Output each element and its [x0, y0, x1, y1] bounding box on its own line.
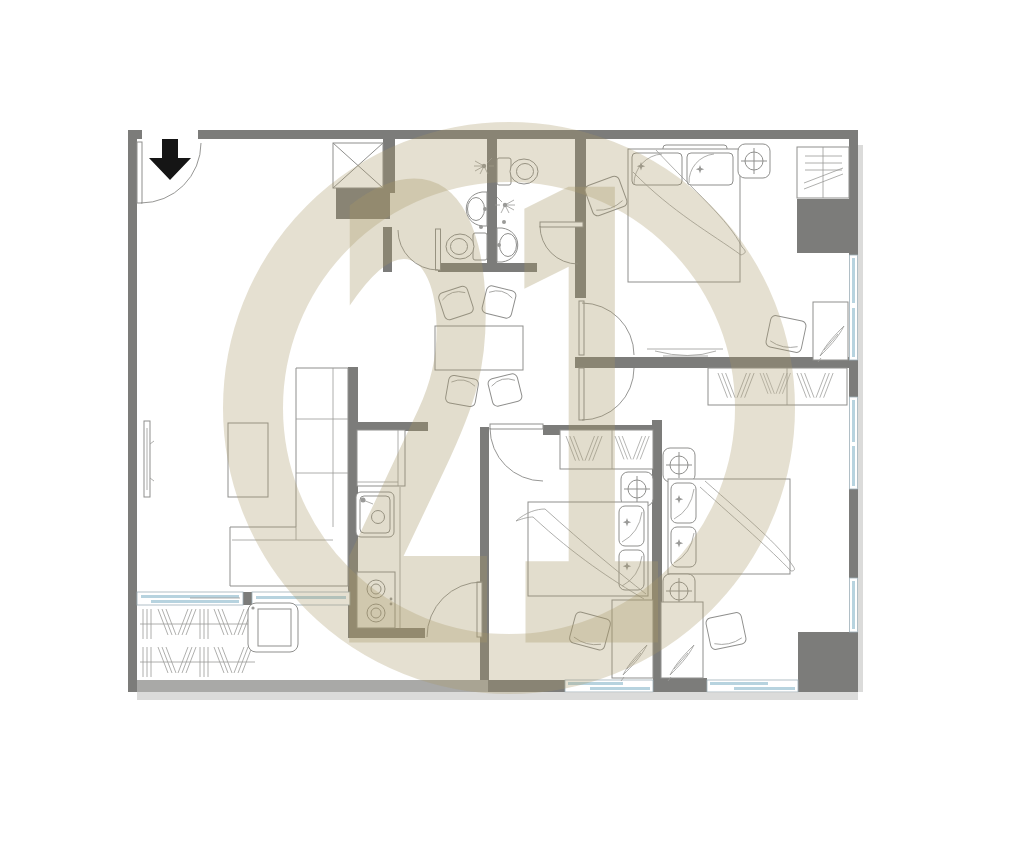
- air-conditioner: [663, 448, 695, 482]
- balcony-door-mullion: [243, 592, 252, 605]
- chair: [705, 612, 747, 651]
- bedroom1-column: [797, 199, 850, 253]
- wall-right-upper: [849, 130, 858, 255]
- wall-right-mid2: [849, 489, 858, 578]
- watermark-digits: 21: [329, 63, 662, 790]
- floor-plan-page: 21: [0, 0, 1024, 841]
- entrance-arrow: [149, 139, 191, 180]
- bedroom1-side-window: [850, 255, 858, 360]
- bedroom3-bottom-window: [707, 680, 798, 692]
- plants-row-1: [140, 609, 255, 639]
- desk: [813, 302, 848, 362]
- floor-plan: 21: [0, 0, 1024, 841]
- wall-tv: [144, 421, 154, 497]
- ceiling-light: [738, 144, 770, 178]
- pillow: [687, 153, 733, 185]
- balcony: [140, 603, 298, 677]
- closet-shelves: [797, 147, 849, 198]
- corner-column: [798, 632, 855, 692]
- pillow: [671, 483, 696, 523]
- plants-row-2: [140, 647, 255, 677]
- bedroom3-side-window-lower: [850, 578, 858, 632]
- bedroom3-side-window-upper: [850, 397, 858, 489]
- wall-right-mid: [849, 360, 858, 397]
- wall-left: [128, 130, 137, 692]
- washing-machine: [248, 603, 298, 652]
